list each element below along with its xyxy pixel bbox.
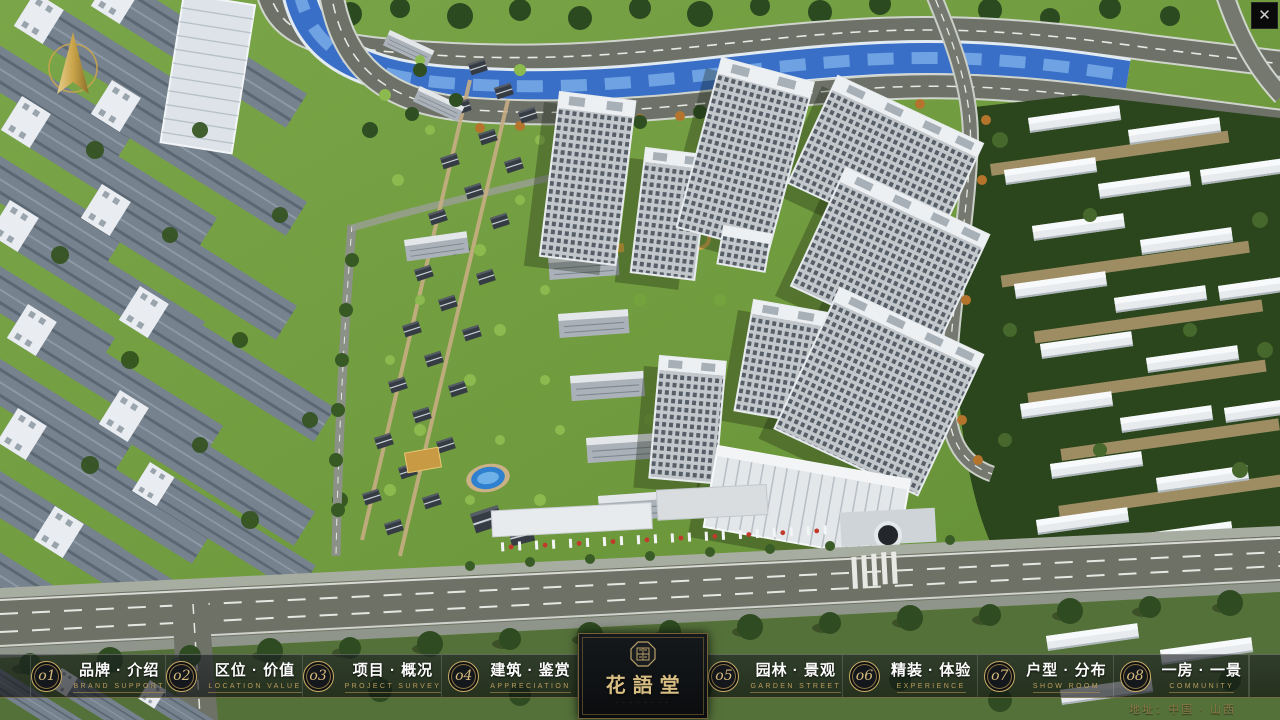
nav-label-zh: 一房 · 一景: [1162, 659, 1242, 680]
nav-item-room-view[interactable]: o8 一房 · 一景 COMMUNITY: [1114, 655, 1249, 697]
bottom-nav: o1 品牌 · 介绍 BRAND SUPPORT o2 区位 · 价值 LOCA…: [0, 654, 1280, 698]
east-neighbourhood: [955, 95, 1280, 584]
close-button[interactable]: ✕: [1251, 2, 1278, 29]
project-address: 地址：中国 · 山西: [1129, 701, 1236, 717]
nav-item-landscape[interactable]: o5 园林 · 景观 GARDEN STREET: [708, 655, 843, 697]
nav-label-zh: 品牌 · 介绍: [79, 659, 159, 680]
nav-number-badge: o7: [984, 661, 1015, 692]
seal-emblem-icon: [630, 641, 656, 667]
nav-label-zh: 项目 · 概况: [353, 659, 433, 680]
nav-number-badge: o1: [31, 661, 62, 692]
nav-label-zh: 建筑 · 鉴赏: [490, 659, 570, 680]
project-logo[interactable]: 花語堂 · · · · · · · ·: [578, 633, 708, 719]
masterplan-rendering: [0, 0, 1280, 720]
nav-number-badge: o5: [708, 661, 739, 692]
nav-label-en: BRAND SUPPORT: [73, 683, 164, 693]
nav-number-badge: o6: [849, 661, 880, 692]
nav-label-zh: 精装 · 体验: [891, 659, 971, 680]
project-name-subtitle: · · · · · · · ·: [616, 700, 669, 706]
entrance-plaza: [875, 523, 900, 548]
nav-item-floorplan-distribution[interactable]: o7 户型 · 分布 SHOW ROOM: [978, 655, 1113, 697]
nav-number-badge: o2: [166, 661, 197, 692]
nav-label-en: LOCATION VALUE: [208, 683, 301, 693]
nav-label-en: EXPERIENCE: [897, 683, 966, 693]
nav-label-zh: 区位 · 价值: [215, 659, 295, 680]
nav-item-brand-intro[interactable]: o1 品牌 · 介绍 BRAND SUPPORT: [31, 655, 166, 697]
nav-number-badge: o3: [303, 661, 334, 692]
nav-label-zh: 户型 · 分布: [1026, 659, 1106, 680]
nav-item-architecture[interactable]: o4 建筑 · 鉴赏 APPRECIATION: [442, 655, 577, 697]
nav-edge-right: [1249, 655, 1280, 697]
nav-number-badge: o4: [448, 661, 479, 692]
project-name: 花語堂: [599, 669, 687, 698]
nav-label-en: PROJECT SURVEY: [345, 683, 442, 693]
nav-label-en: COMMUNITY: [1169, 683, 1234, 693]
nav-number-badge: o8: [1120, 661, 1151, 692]
nav-label-zh: 园林 · 景观: [756, 659, 836, 680]
nav-item-interior-experience[interactable]: o6 精装 · 体验 EXPERIENCE: [843, 655, 978, 697]
nav-label-en: GARDEN STREET: [750, 683, 841, 693]
presentation-screen: ✕ o1 品牌 · 介绍 BRAND SUPPORT o2 区位 · 价值 LO…: [0, 0, 1280, 720]
nav-label-en: SHOW ROOM: [1033, 683, 1100, 693]
nav-edge-left: [0, 655, 31, 697]
nav-item-project-overview[interactable]: o3 项目 · 概况 PROJECT SURVEY: [303, 655, 443, 697]
nav-label-en: APPRECIATION: [490, 683, 570, 693]
nav-item-location-value[interactable]: o2 区位 · 价值 LOCATION VALUE: [166, 655, 302, 697]
